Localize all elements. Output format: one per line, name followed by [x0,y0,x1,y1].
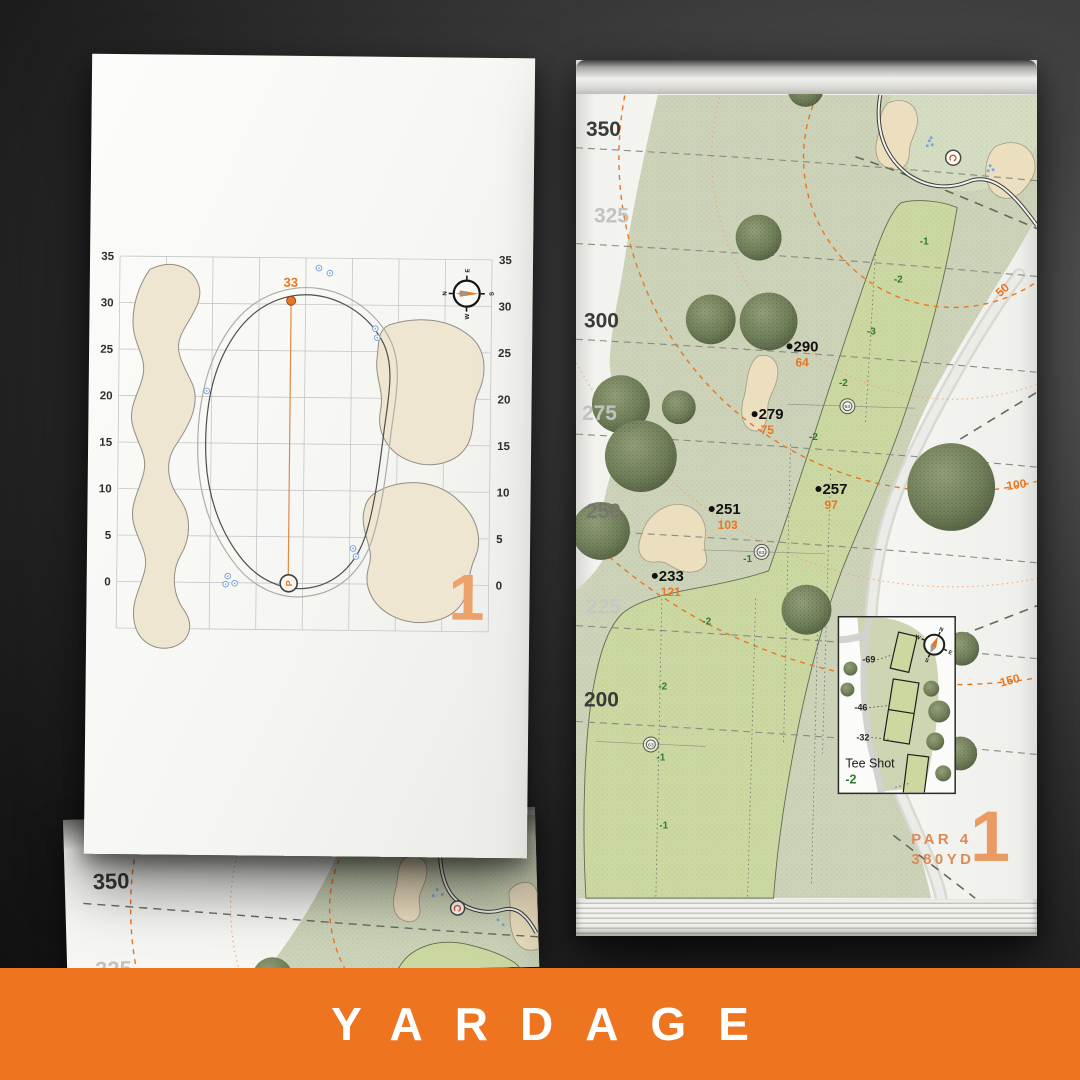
tick-label: 20 [498,394,511,406]
pin-letter: P [284,580,294,586]
tick-label: 20 [100,390,113,402]
remaining-value: 103 [718,518,738,532]
green-outline [196,286,398,598]
tick-label: 0 [496,580,503,592]
elevation-label: -1 [659,820,668,831]
pin-icon: P [280,575,297,592]
remaining-value: 97 [824,498,838,512]
distance-band-label: 300 [584,309,619,332]
elevation-label: -2 [702,617,711,628]
tee-shot-inset: -69 -46 -32 Tee Shot -2 [838,617,960,800]
page-curl [576,60,1037,94]
elevation-label: -1 [743,554,752,565]
distance-value: 290 [794,338,819,355]
remaining-value: 75 [761,423,775,437]
distance-band-label: 250 [586,500,621,523]
green-detail-page: 33 P 35 30 25 20 15 10 5 0 35 30 25 20 [84,54,535,859]
axis-ticks-right: 35 30 25 20 15 10 5 0 [496,255,513,593]
distance-band-label: 325 [594,205,629,228]
tick-label: 30 [499,301,512,313]
compass-e: E [465,269,471,273]
pin-icon [946,150,961,165]
tick-label: 25 [498,348,512,360]
hole-header: PAR 4 380YD 1 [911,797,1010,877]
elevation-label: -2 [809,432,818,443]
distance-value: 257 [822,481,847,498]
sprinkler-number: 63 [845,404,851,410]
distance-value: 233 [659,568,684,585]
elevation-label: -2 [839,378,848,389]
tick-label: 35 [499,255,513,267]
distance-band-label: 200 [584,689,619,712]
pin-icon [450,901,464,915]
tick-label: 5 [105,530,112,542]
compass-w: W [465,313,471,319]
green-map: 33 P 35 30 25 20 15 10 5 0 35 30 25 20 [84,54,535,859]
arc-label: 100 [1006,476,1028,493]
tick-label: 30 [101,297,114,309]
distance-band-label: 225 [586,596,621,619]
hole-number: 1 [448,560,485,633]
elevation-label: -3 [867,326,876,337]
remaining-value: 121 [661,585,681,599]
total-yardage-label: 380YD [911,851,974,868]
tick-label: 25 [100,344,114,356]
tick-label: 35 [101,251,115,263]
compass-n: N [443,291,449,295]
pin-depth-line [288,301,291,583]
distance-band-label: 275 [582,402,617,425]
remaining-value: 64 [796,355,810,369]
inset-title: Tee Shot [845,756,895,770]
tee-offset-label: -46 [854,703,867,713]
sprinkler-number: 63 [648,742,654,748]
elevation-label: -2 [894,274,903,285]
axis-ticks-left: 35 30 25 20 15 10 5 0 [98,251,115,589]
depth-dot [287,296,296,305]
compass-s: S [490,292,496,296]
pin-depth-label: 33 [284,275,299,290]
page-stack-edge [576,899,1037,936]
tee-offset-label: -69 [862,655,875,665]
arc-labels: 50 100 150 [993,280,1028,689]
hole-map: 50 100 150 [576,94,1037,899]
tick-label: 15 [99,437,113,449]
distance-value: 251 [716,501,741,518]
tick-label: 10 [99,483,112,495]
distance-value: 279 [759,406,784,423]
distance-band-label: 350 [586,118,621,141]
tee-offset-label: -32 [856,732,869,742]
sprinkler-number: 63 [759,550,765,556]
par-label: PAR 4 [911,831,971,848]
tick-label: 10 [497,487,510,499]
distance-band-label: 350 [92,868,129,894]
banner-title: YARDAGE [299,997,781,1051]
bunker [129,264,485,651]
hole-number: 1 [970,797,1010,877]
dark-backdrop: 350 325 [0,0,1080,1080]
inset-elevation: -2 [845,772,856,786]
tick-label: 0 [104,576,111,588]
compass-icon: N E S W [442,268,496,319]
hole-map-page: 50 100 150 [576,60,1037,936]
yardage-banner: YARDAGE [0,968,1080,1080]
arc-label: 150 [998,671,1021,689]
elevation-label: -1 [656,752,665,763]
elevation-label: -2 [658,682,667,693]
tick-label: 5 [496,534,503,546]
elevation-label: -1 [920,237,929,248]
tick-label: 15 [497,441,511,453]
